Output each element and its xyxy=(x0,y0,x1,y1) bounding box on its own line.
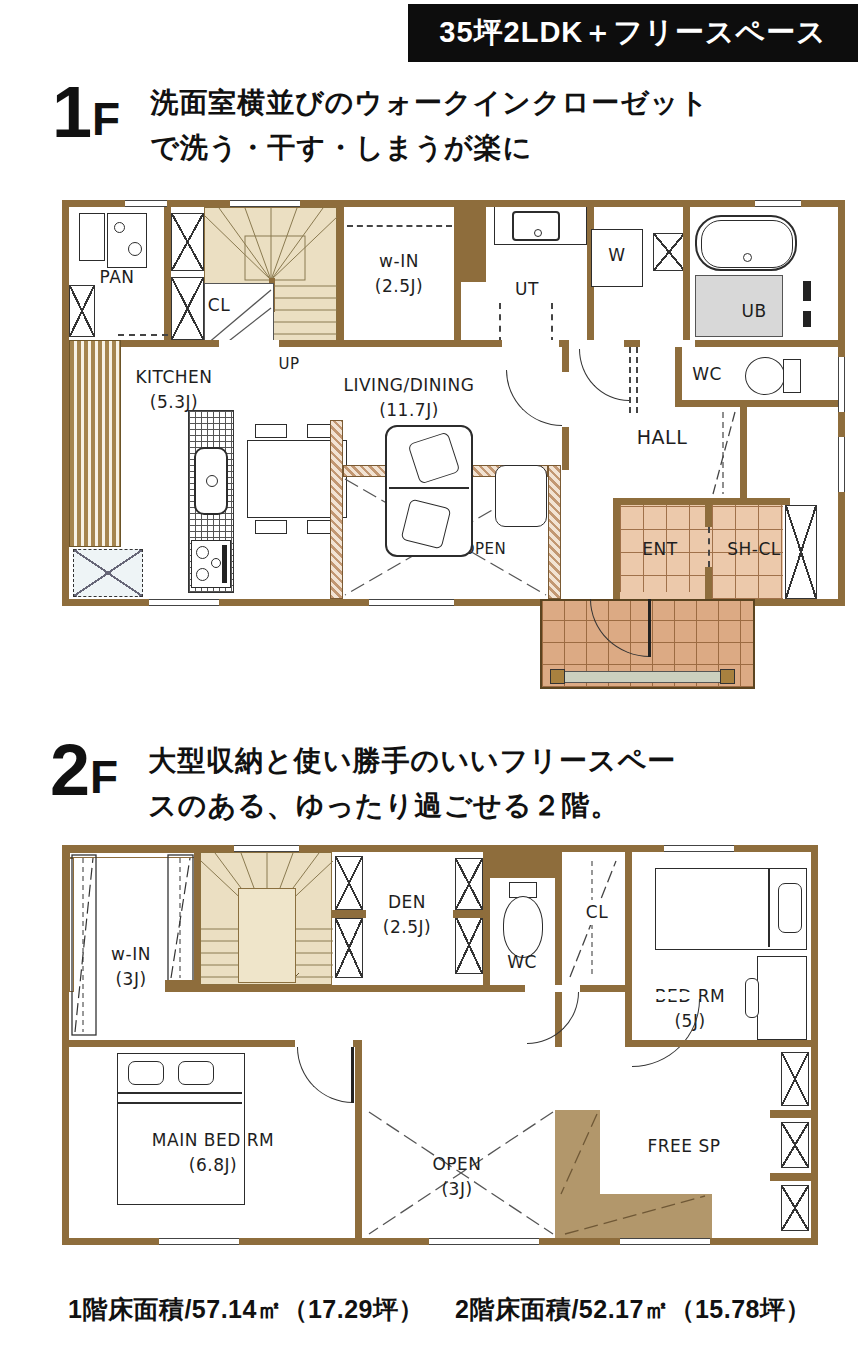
floor1-desc-line1: 洗面室横並びのウォークインクローゼット xyxy=(150,87,709,118)
door-arc xyxy=(579,349,629,401)
wall xyxy=(770,1173,811,1181)
main-text: MAIN BED RM xyxy=(152,1130,274,1150)
closet-symbol xyxy=(653,233,685,271)
chair-icon xyxy=(745,978,759,1018)
sofa-divider xyxy=(389,487,469,489)
wall xyxy=(461,207,486,282)
wall xyxy=(355,1047,362,1238)
drain-icon xyxy=(206,475,218,487)
closet-symbol xyxy=(781,1122,809,1168)
closet-symbol xyxy=(455,858,483,910)
pan-text: PAN xyxy=(99,267,134,287)
wall xyxy=(613,498,790,505)
room-label-shcl: SH-CL xyxy=(714,537,794,562)
free-text: FREE SP xyxy=(647,1136,720,1156)
bed-icon xyxy=(655,868,807,950)
living-text: LIVING/DINING xyxy=(344,375,475,395)
door-arc xyxy=(527,992,579,1044)
room-label-ub: UB xyxy=(724,299,784,324)
closet-symbol xyxy=(781,1052,809,1106)
room-label-win-2f: w-IN (3J) xyxy=(91,942,171,992)
wood-deck-strip xyxy=(69,340,121,547)
floor1-heading: 1 F 洗面室横並びのウォークインクローゼット で洗う・干す・しまうが楽に xyxy=(52,80,709,170)
room-label-open-2f: OPEN (3J) xyxy=(417,1152,497,1202)
sofa-icon xyxy=(385,425,473,557)
living-size: (11.7J) xyxy=(379,400,439,420)
w-text: W xyxy=(608,245,625,265)
window-gap xyxy=(125,200,167,207)
floor2-area-text: 2階床面積/52.17㎡（15.78坪） xyxy=(455,1293,811,1326)
room-label-ut: UT xyxy=(502,277,552,302)
floor2-desc-line1: 大型収納と使い勝手のいいフリースペー xyxy=(148,745,676,776)
porch-post xyxy=(550,669,565,684)
floor2-desc-line2: スのある、ゆったり過ごせる２階。 xyxy=(148,790,619,821)
hall-text: HALL xyxy=(637,426,687,448)
room-label-freesp: FREE SP xyxy=(614,1134,754,1159)
room-label-w: W xyxy=(591,243,643,268)
chair-icon xyxy=(255,520,287,534)
utility-sink-icon xyxy=(512,211,560,241)
void-hatch-wall xyxy=(548,465,561,599)
drain-icon xyxy=(534,229,542,237)
floor2-number: 2 xyxy=(50,738,90,802)
open-wall-dashed xyxy=(118,334,168,336)
wall xyxy=(770,1110,811,1118)
kitchen-text: KITCHEN xyxy=(135,367,212,387)
toilet-icon xyxy=(745,355,805,397)
door-leaf xyxy=(351,1047,354,1103)
wall xyxy=(625,1040,811,1047)
shcl-text: SH-CL xyxy=(727,539,781,559)
wall xyxy=(483,852,490,985)
open-wall-dashed xyxy=(499,303,501,343)
window-gap xyxy=(664,845,734,852)
staircase-2f xyxy=(200,852,332,985)
wall xyxy=(705,567,712,599)
pillow-icon xyxy=(178,1061,214,1085)
window-gap xyxy=(149,599,219,606)
toilet-tank xyxy=(783,359,801,393)
wall xyxy=(683,207,690,340)
wall xyxy=(562,427,569,470)
closet-symbol xyxy=(785,505,817,599)
open-wall-dashed xyxy=(551,303,553,343)
doorway xyxy=(569,340,624,347)
floor1-f: F xyxy=(92,96,120,142)
wall xyxy=(453,910,485,918)
wall xyxy=(490,852,555,878)
doorway xyxy=(502,340,559,347)
counter-lines xyxy=(555,1110,712,1238)
floor1-area-text: 1階床面積/57.14㎡（17.29坪） xyxy=(68,1293,424,1326)
den-size: (2.5J) xyxy=(383,917,431,937)
wall xyxy=(69,340,838,347)
floor2-description: 大型収納と使い勝手のいいフリースペー スのある、ゆったり過ごせる２階。 xyxy=(148,738,676,828)
drain-icon xyxy=(743,253,752,262)
porch-step xyxy=(556,671,724,683)
room-label-mainbed: MAIN BED RM (6.8J) xyxy=(103,1128,323,1178)
plan-title: 35坪2LDK＋フリースペース xyxy=(439,13,826,53)
window-gap xyxy=(234,845,299,852)
room-label-up: UP xyxy=(264,352,314,377)
wall xyxy=(562,347,569,372)
wall xyxy=(705,505,712,527)
window-gap xyxy=(838,437,845,492)
window-gap xyxy=(838,357,845,412)
bathtub-icon xyxy=(695,215,797,271)
window-gap xyxy=(230,200,300,207)
floor1-plan: CL UP PAN w-IN (2.5J) UT W xyxy=(62,200,845,606)
floor1-number: 1 xyxy=(52,80,92,144)
burner-icon xyxy=(196,546,209,559)
pan-appliance-icon xyxy=(79,213,105,261)
closet-pole-dashed xyxy=(347,225,452,227)
toilet-bowl xyxy=(745,357,785,395)
open-wall-dashed xyxy=(708,527,710,567)
front-door-leaf xyxy=(648,599,651,657)
wall xyxy=(625,852,632,1047)
open2-size: (3J) xyxy=(441,1179,472,1199)
door-arc xyxy=(506,370,562,426)
floor2-plan: w-IN (3J) DEN (2.5J) xyxy=(62,845,818,1245)
den-text: DEN xyxy=(388,892,426,912)
kitchen-size: (5.3J) xyxy=(150,392,198,412)
toilet-bowl xyxy=(503,896,543,958)
doorway xyxy=(632,992,692,999)
room-label-wc-2f: WC xyxy=(497,950,547,975)
room-label-cl-2f: CL xyxy=(574,900,620,925)
floor1-description: 洗面室横並びのウォークインクローゼット で洗う・干す・しまうが楽に xyxy=(150,80,709,170)
floor1-desc-line2: で洗う・干す・しまうが楽に xyxy=(150,132,532,163)
cl2-text: CL xyxy=(586,902,608,922)
bed-line xyxy=(118,1102,242,1104)
closet-symbol xyxy=(69,285,95,337)
cl-text: CL xyxy=(208,295,230,315)
plan-title-banner: 35坪2LDK＋フリースペース xyxy=(408,4,858,62)
win-text: w-IN xyxy=(379,251,419,271)
bed-line xyxy=(118,1092,242,1094)
burner-icon xyxy=(128,242,142,256)
stove-icon xyxy=(191,540,231,588)
room-label-den: DEN (2.5J) xyxy=(357,890,457,940)
win2-size: (3J) xyxy=(115,969,146,989)
wall xyxy=(675,347,682,407)
open2-text: OPEN xyxy=(432,1154,481,1174)
desk-icon xyxy=(757,956,807,1040)
room-label-kitchen: KITCHEN (5.3J) xyxy=(119,365,229,415)
room-label-win-1f: w-IN (2.5J) xyxy=(349,249,449,299)
doorway xyxy=(295,1040,353,1047)
open-wall-dashed xyxy=(629,347,631,413)
floor2-f: F xyxy=(90,754,118,800)
room-label-wc-1f: WC xyxy=(682,362,732,387)
closet-ladder-lines xyxy=(709,410,739,496)
void-hatch-wall xyxy=(330,420,343,599)
chair-icon xyxy=(255,424,287,438)
closet-ladder-lines xyxy=(167,854,195,982)
floorplan-page: { "banner": { "title": "35坪2LDK＋フリースペース"… xyxy=(0,0,858,1359)
pillow-icon xyxy=(778,883,802,933)
win-size: (2.5J) xyxy=(375,276,423,296)
doorway xyxy=(219,340,279,347)
room-label-living: LIVING/DINING (11.7J) xyxy=(324,373,494,423)
closet-symbol xyxy=(781,1185,809,1231)
floor2-heading: 2 F 大型収納と使い勝手のいいフリースペー スのある、ゆったり過ごせる２階。 xyxy=(50,738,676,828)
kitchen-sink-icon xyxy=(194,447,228,515)
burner-icon xyxy=(196,568,209,581)
bath-fixture-icon xyxy=(803,311,811,327)
room-label-ent: ENT xyxy=(625,537,695,562)
burner-icon xyxy=(114,222,125,233)
ut-text: UT xyxy=(515,279,539,299)
doorway xyxy=(525,985,580,992)
window-gap xyxy=(620,1238,710,1245)
area1-value: 1階床面積/57.14㎡（17.29坪） xyxy=(68,1295,424,1323)
ub-text: UB xyxy=(741,301,766,321)
wc2-text: WC xyxy=(507,952,537,972)
floor-hatch-symbol xyxy=(73,549,143,597)
bed-divider xyxy=(768,869,770,947)
win2-text: w-IN xyxy=(111,944,151,964)
up-text: UP xyxy=(278,355,299,373)
closet-symbol xyxy=(455,916,483,974)
main-size: (6.8J) xyxy=(189,1155,237,1175)
grill-icon xyxy=(222,545,227,583)
window-gap xyxy=(369,599,454,606)
window-gap xyxy=(755,200,801,207)
open-wall-dashed xyxy=(636,347,638,413)
pillow-icon xyxy=(128,1061,164,1085)
closet-symbol xyxy=(171,277,204,340)
window-gap xyxy=(159,1238,239,1245)
cushion-icon xyxy=(401,499,452,550)
burner-icon xyxy=(211,558,221,568)
closet-symbol xyxy=(171,213,204,271)
room-label-hall: HALL xyxy=(617,425,707,450)
stove-top-icon xyxy=(107,213,147,268)
ent-text: ENT xyxy=(642,539,677,559)
wall xyxy=(164,207,171,340)
armchair-icon xyxy=(495,465,547,527)
wall xyxy=(740,407,747,498)
porch-post xyxy=(720,669,735,684)
stair-well xyxy=(238,888,296,983)
bath-fixture-icon xyxy=(803,281,811,301)
wc1-text: WC xyxy=(692,364,722,384)
window-gap xyxy=(429,1238,539,1245)
area2-value: 2階床面積/52.17㎡（15.78坪） xyxy=(455,1295,811,1323)
door-arc xyxy=(297,1047,353,1103)
cushion-icon xyxy=(408,432,461,485)
wall xyxy=(613,498,620,599)
doorway xyxy=(640,340,695,347)
wall xyxy=(454,207,461,347)
wall xyxy=(675,400,838,407)
wall xyxy=(337,207,344,347)
door-arc xyxy=(632,999,700,1067)
